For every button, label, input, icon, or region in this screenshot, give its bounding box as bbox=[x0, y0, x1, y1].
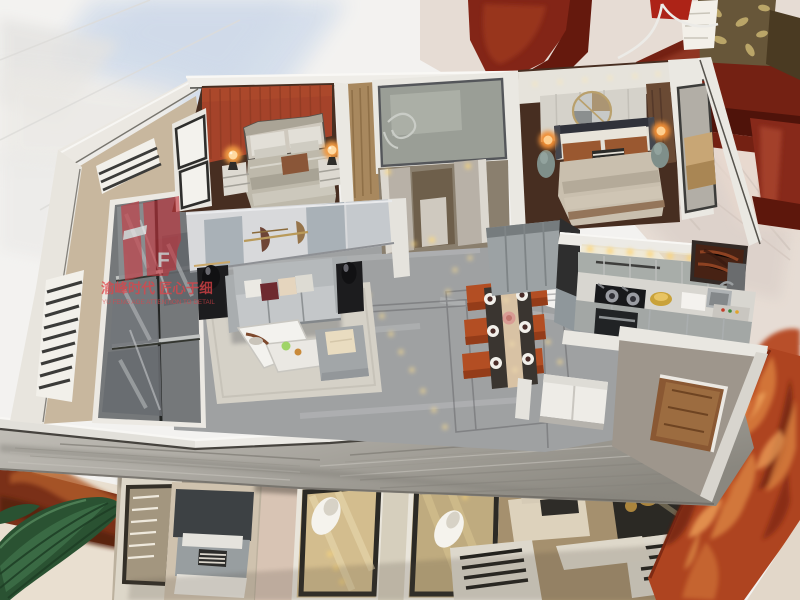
svg-text:渝峰时代 匠心于细: 渝峰时代 匠心于细 bbox=[101, 280, 213, 296]
svg-text:F: F bbox=[157, 249, 170, 272]
svg-text:YU FENG AGE ATTENTION TO DETAI: YU FENG AGE ATTENTION TO DETAIL bbox=[102, 299, 215, 306]
